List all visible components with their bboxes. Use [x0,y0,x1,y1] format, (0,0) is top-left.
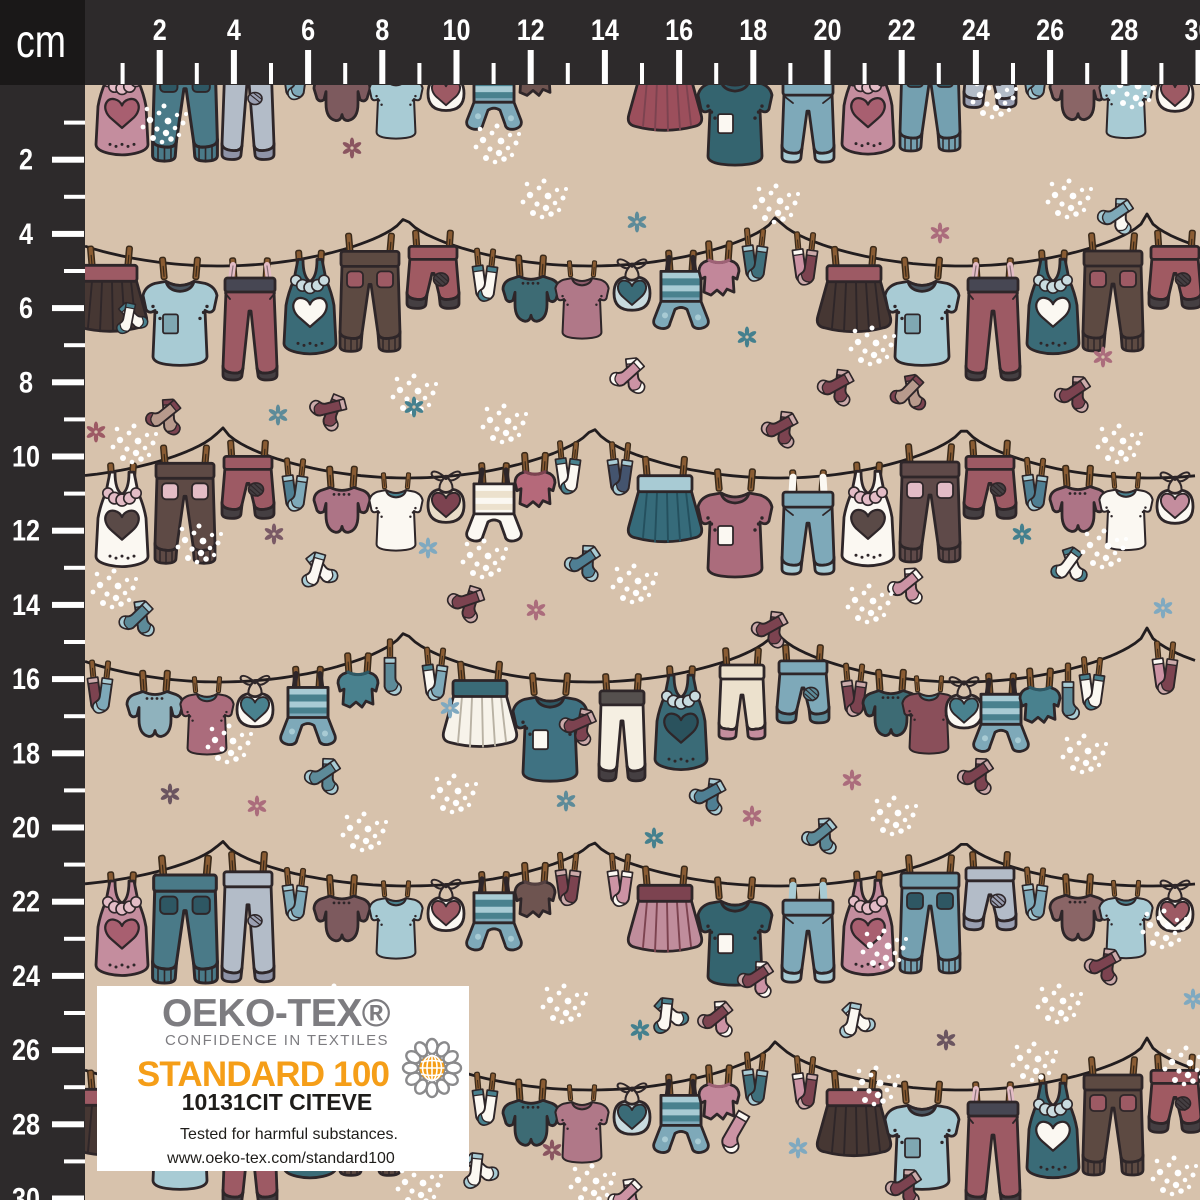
svg-text:2: 2 [19,144,33,177]
svg-text:12: 12 [517,14,545,47]
svg-text:16: 16 [12,663,40,696]
svg-text:6: 6 [19,292,33,325]
svg-text:30: 30 [1185,14,1200,47]
svg-text:24: 24 [962,14,990,47]
svg-text:2: 2 [153,14,167,47]
svg-text:10: 10 [12,441,40,474]
svg-text:22: 22 [12,886,40,919]
svg-text:10131CIT CITEVE: 10131CIT CITEVE [182,1089,372,1115]
svg-text:8: 8 [19,366,33,399]
svg-text:30: 30 [12,1183,40,1200]
svg-text:26: 26 [12,1034,40,1067]
svg-text:cm: cm [16,15,66,67]
svg-text:26: 26 [1036,14,1064,47]
svg-text:14: 14 [12,589,40,622]
svg-text:12: 12 [12,515,40,548]
svg-text:OEKO-TEX®: OEKO-TEX® [162,992,391,1035]
svg-text:www.oeko-tex.com/standard100: www.oeko-tex.com/standard100 [166,1150,395,1167]
svg-text:20: 20 [814,14,842,47]
svg-text:14: 14 [591,14,619,47]
svg-text:24: 24 [12,960,40,993]
svg-text:4: 4 [19,218,33,251]
svg-text:Tested for harmful substances.: Tested for harmful substances. [180,1126,398,1143]
svg-text:20: 20 [12,812,40,845]
svg-text:4: 4 [227,14,241,47]
svg-text:16: 16 [665,14,693,47]
svg-text:10: 10 [443,14,471,47]
svg-text:18: 18 [12,737,40,770]
svg-text:28: 28 [1110,14,1138,47]
svg-text:CONFIDENCE IN TEXTILES: CONFIDENCE IN TEXTILES [165,1032,389,1049]
svg-text:22: 22 [888,14,916,47]
svg-text:18: 18 [739,14,767,47]
svg-text:6: 6 [301,14,315,47]
svg-text:8: 8 [375,14,389,47]
svg-text:28: 28 [12,1108,40,1141]
